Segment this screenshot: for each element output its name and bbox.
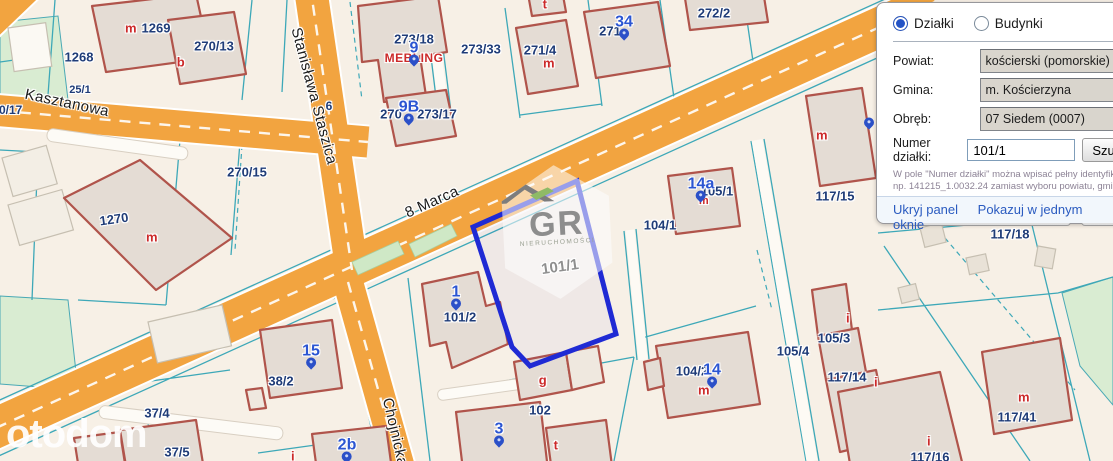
dropdown-select[interactable]: m. Kościerzyna <box>980 78 1113 102</box>
radio-budynki[interactable]: Budynki <box>974 16 1043 31</box>
panel-links-row: Ukryj panel Pokazuj w jednym oknie <box>877 196 1113 223</box>
select-rows: Powiat: kościerski (pomorskie) Gmina: m.… <box>893 49 1113 131</box>
field-label: Obręb: <box>893 112 980 126</box>
radio-dzialki-label: Działki <box>914 16 954 31</box>
dropdown-select[interactable]: 07 Siedem (0007) <box>980 107 1113 131</box>
radio-selected-icon <box>893 16 908 31</box>
parcel-number-input[interactable] <box>967 139 1075 161</box>
panel-divider <box>893 41 1113 42</box>
search-panel: Działki Budynki Powiat: kościerski (pomo… <box>876 2 1113 224</box>
map-viewer: KasztanowaStanisława Staszica8 MarcaChoj… <box>0 0 1113 461</box>
layer-radio-row: Działki Budynki <box>893 13 1113 33</box>
radio-budynki-label: Budynki <box>995 16 1043 31</box>
form-row: Obręb: 07 Siedem (0007) <box>893 107 1113 131</box>
parcel-number-field-label: Numer działki: <box>893 136 967 164</box>
field-label: Powiat: <box>893 54 980 68</box>
radio-dzialki[interactable]: Działki <box>893 16 954 31</box>
form-row: Gmina: m. Kościerzyna <box>893 78 1113 102</box>
radio-unselected-icon <box>974 16 989 31</box>
hint-line-1: W pole "Numer działki" można wpisać pełn… <box>893 169 1113 180</box>
field-label: Gmina: <box>893 83 980 97</box>
form-row: Powiat: kościerski (pomorskie) <box>893 49 1113 73</box>
hint-text: W pole "Numer działki" można wpisać pełn… <box>893 169 1113 192</box>
parcel-number-row: Numer działki: Szukaj <box>893 136 1113 164</box>
hide-panel-link[interactable]: Ukryj panel <box>893 202 958 217</box>
dropdown-select[interactable]: kościerski (pomorskie) <box>980 49 1113 73</box>
hint-line-2: np. 141215_1.0032.24 zamiast wyboru powi… <box>893 181 1113 192</box>
search-button[interactable]: Szukaj <box>1082 138 1113 162</box>
